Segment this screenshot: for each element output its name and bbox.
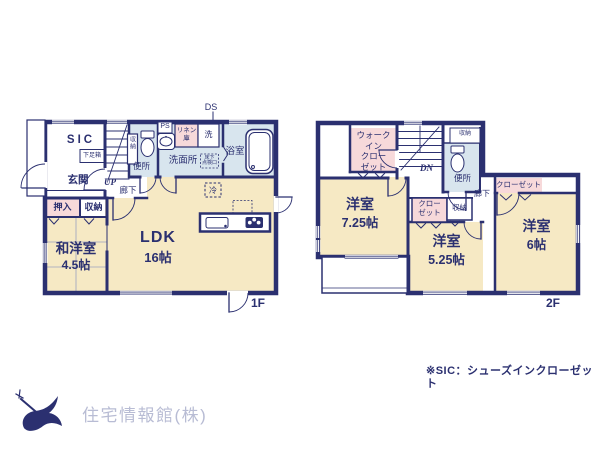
- storage-top-label: 収納: [450, 131, 480, 138]
- balcony: [322, 257, 408, 293]
- closet-right-label: クローゼット: [495, 181, 542, 190]
- stair-storage-label: 収納: [129, 136, 135, 164]
- hallway-label-1f: 廊下: [114, 185, 142, 195]
- toilet-label-1f: 便所: [128, 161, 155, 171]
- linen-label: リネン 庫: [176, 127, 198, 142]
- closet-mid-label: クロー ゼット: [412, 200, 447, 218]
- storage-label-1f: 収納: [80, 202, 107, 213]
- room-size-tatami: 4.5帖: [45, 258, 107, 272]
- storage-mid-label: 収納: [447, 204, 472, 213]
- floor2-label: 2F: [546, 296, 560, 310]
- washbasin-icon: [158, 134, 175, 150]
- room-size-6: 6帖: [495, 238, 578, 253]
- room-label-525: 洋室: [410, 233, 483, 250]
- company-name: 住宅情報館(株): [82, 406, 207, 426]
- washroom-label: 洗面所: [162, 155, 204, 166]
- wic-label: ウォーク イン クロー ゼット: [350, 130, 397, 173]
- washer-label: 洗: [198, 130, 219, 139]
- toilet-icon-1f: [141, 131, 154, 157]
- dn-label: DN: [420, 163, 433, 174]
- floorplan-page: DS SIC 下足箱 玄関 UP 廊下 収納 便所 PS リネン 庫 洗 洗面所…: [0, 0, 600, 450]
- ds-label: DS: [196, 102, 226, 113]
- company-logo-bird-icon: [16, 390, 62, 431]
- sic-note: ※SIC：シューズインクローゼット: [426, 365, 600, 391]
- kitchen-counter-icon: [200, 214, 270, 232]
- room-size-ldk: 16帖: [128, 250, 188, 265]
- room-label-sic: SIC: [62, 134, 100, 148]
- room-size-525: 5.25帖: [410, 253, 483, 268]
- room-label-entrance: 玄関: [62, 174, 94, 186]
- floor1-label: 1F: [251, 296, 265, 310]
- toilet-label-2f: 便所: [443, 173, 482, 183]
- oshiire-label: 押入: [45, 202, 80, 213]
- room-label-6: 洋室: [495, 218, 578, 235]
- bathroom-label: 浴室: [222, 146, 248, 157]
- room-label-ldk: LDK: [128, 229, 188, 248]
- room-label-tatami: 和洋室: [45, 241, 107, 257]
- entrance-porch: [27, 120, 45, 196]
- shoe-box-label: 下足箱: [80, 153, 104, 160]
- bathtub-icon: [246, 130, 273, 174]
- floor-hatch-label-1: 床下 点検口: [201, 156, 219, 168]
- ps-label: PS: [158, 123, 172, 131]
- fridge-label: 冷: [205, 186, 221, 195]
- room-size-725: 7.25帖: [330, 216, 390, 231]
- toilet-icon-2f: [451, 146, 464, 172]
- hallway-label-2f: 廊下: [468, 189, 496, 198]
- room-label-725: 洋室: [330, 196, 390, 213]
